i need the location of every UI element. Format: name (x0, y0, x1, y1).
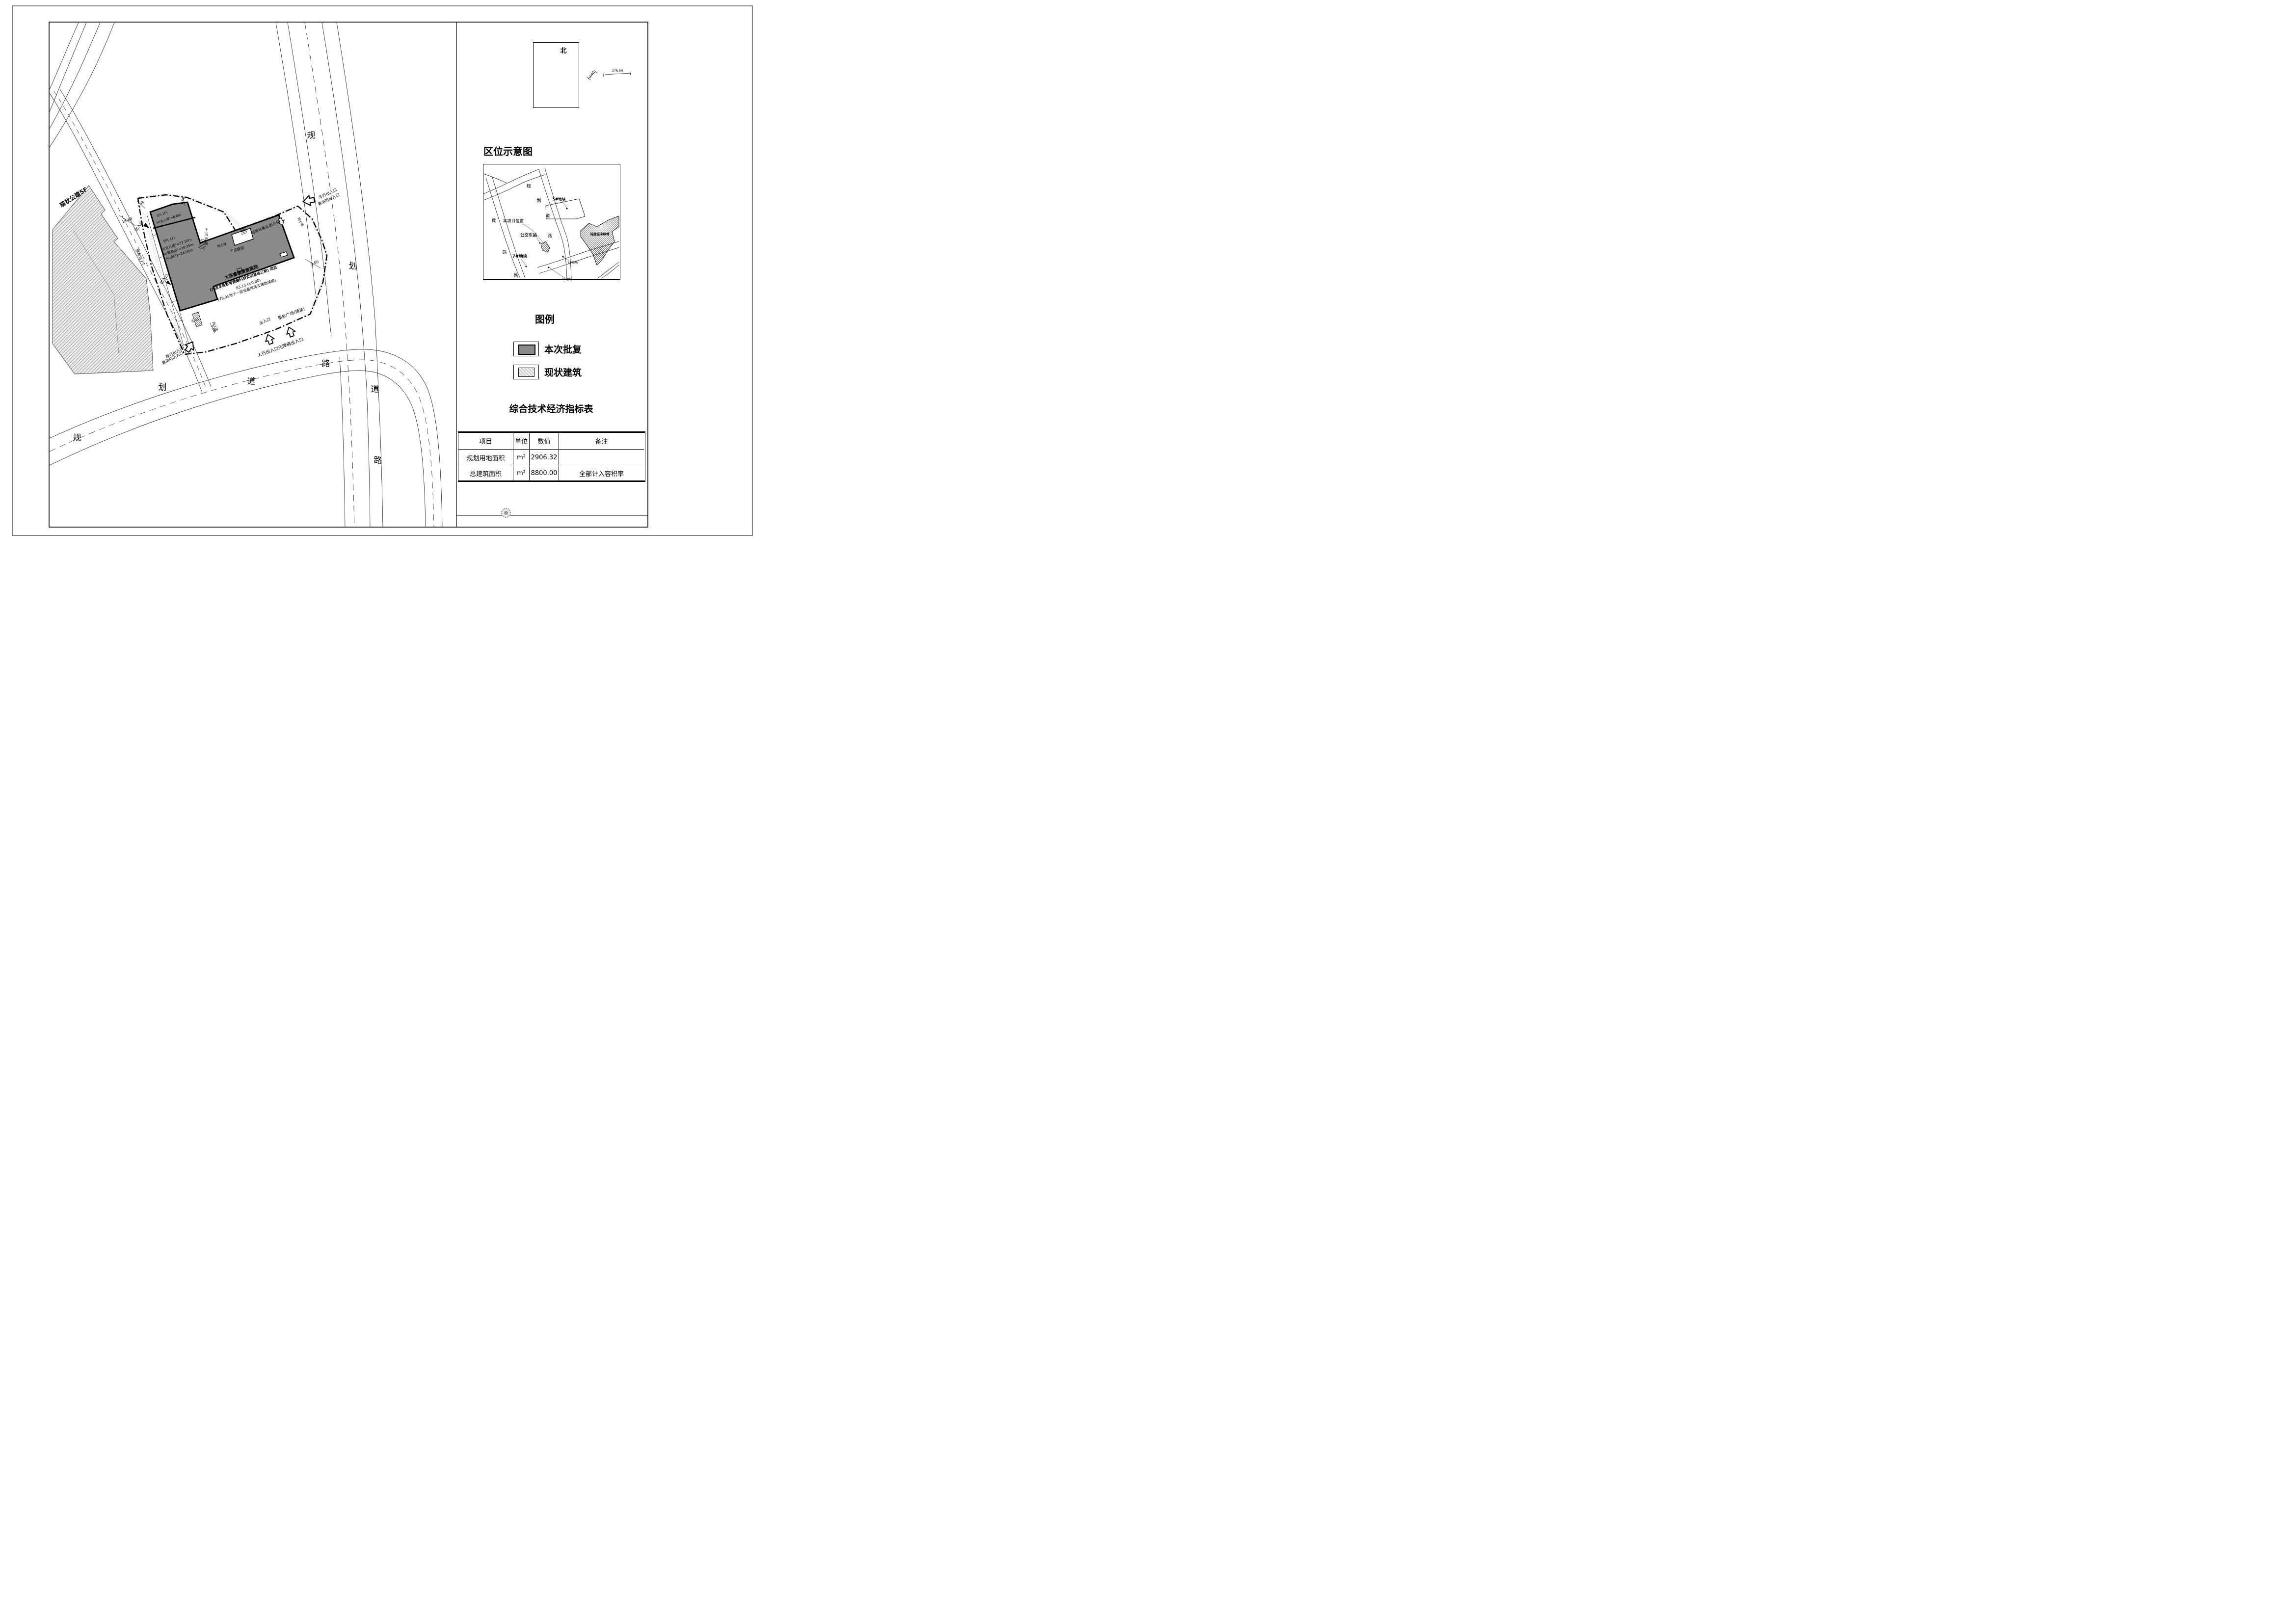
road-name-char: 规 (307, 132, 316, 140)
road-name-char: 数 (491, 219, 496, 224)
table-cell: 全部计入容积率 (559, 466, 644, 480)
legend-item-existing (513, 365, 539, 379)
table-cell: 8800.00 (530, 466, 559, 480)
approved-swatch (518, 345, 535, 355)
legend-label-approved: 本次批复 (544, 343, 582, 356)
legend-label-existing: 现状建筑 (544, 366, 582, 379)
stamp-seal (501, 508, 511, 518)
road-name-char: 路 (322, 360, 330, 369)
sunken-courtyard-label: 下沉庭院 (204, 228, 208, 246)
location-sketch-title: 区位示意图 (483, 144, 533, 158)
existing-swatch (518, 368, 534, 377)
road-name-char: 道 (545, 214, 550, 219)
road-name-char: 路 (547, 235, 552, 239)
parcel-label: 5#地块 (553, 197, 566, 201)
green-space-label: 待建城市绿地 (590, 233, 610, 236)
table-cell: 总建筑面积 (458, 466, 513, 480)
project-location-label: 本项目位置 (503, 219, 524, 224)
legend-item-approved (513, 342, 539, 356)
parcel-label: 7#地块 (512, 255, 527, 259)
road-name-char: 划 (536, 199, 541, 204)
north-arrow-box (533, 42, 579, 108)
table-header: 项目 (458, 433, 513, 450)
indicators-table: 项目 单位 数值 备注 规划用地面积 m² 2906.32 总建筑面积 m² 8… (458, 431, 645, 482)
legend-title: 图例 (535, 312, 555, 326)
drawing-sheet: 区位示意图 图例 综合技术经济指标表 本次批复 现状建筑 项目 单位 数值 备注… (0, 0, 765, 541)
existing-building (53, 186, 153, 374)
road-name-char: 划 (159, 384, 167, 392)
parcel-label: 4#地块 (562, 278, 572, 281)
table-title: 综合技术经济指标表 (509, 402, 593, 415)
road-name-char: 道 (371, 386, 379, 394)
road-name-char: 路 (374, 457, 382, 465)
table-header: 数值 (530, 433, 559, 450)
road-name-char: 规 (526, 185, 531, 189)
table-cell (559, 450, 644, 466)
road-name-char: 道 (247, 378, 256, 386)
parcel-label: 6#地块 (568, 262, 578, 265)
bus-station-label: 公交车站 (520, 234, 537, 238)
table-cell: 2906.32 (530, 450, 559, 466)
site-plan-drawing (0, 0, 765, 541)
table-cell: m² (513, 450, 530, 466)
road-name-char: 路 (513, 274, 518, 279)
road-name-char: 码 (502, 251, 507, 256)
table-cell: m² (513, 466, 530, 480)
north-label: 北 (560, 48, 566, 54)
dimension: 276.50 (612, 69, 623, 73)
table-header: 备注 (559, 433, 644, 450)
road-name-char: 划 (349, 263, 357, 271)
table-cell: 规划用地面积 (458, 450, 513, 466)
road-name-char: 规 (73, 434, 81, 443)
table-header: 单位 (513, 433, 530, 450)
